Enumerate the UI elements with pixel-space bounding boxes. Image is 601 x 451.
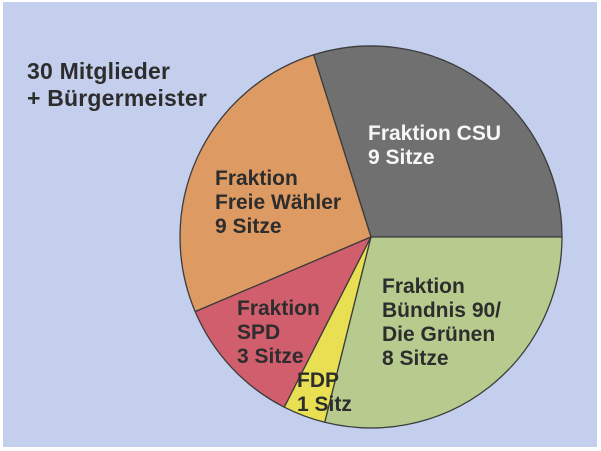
chart-title-line-1: 30 Mitglieder xyxy=(27,58,207,85)
slice-label-fdp: FDP 1 Sitz xyxy=(297,369,352,417)
slice-label-gruene: Fraktion Bündnis 90/ Die Grünen 8 Sitze xyxy=(382,275,501,371)
slice-label-freie-waehler: Fraktion Freie Wähler 9 Sitze xyxy=(215,167,341,239)
chart-title: 30 Mitglieder + Bürgermeister xyxy=(27,58,207,112)
page: 30 Mitglieder + Bürgermeister Fraktion C… xyxy=(0,0,601,451)
chart-title-line-2: + Bürgermeister xyxy=(27,85,207,112)
slice-label-spd: Fraktion SPD 3 Sitze xyxy=(237,297,320,369)
slice-label-csu: Fraktion CSU 9 Sitze xyxy=(368,122,501,170)
